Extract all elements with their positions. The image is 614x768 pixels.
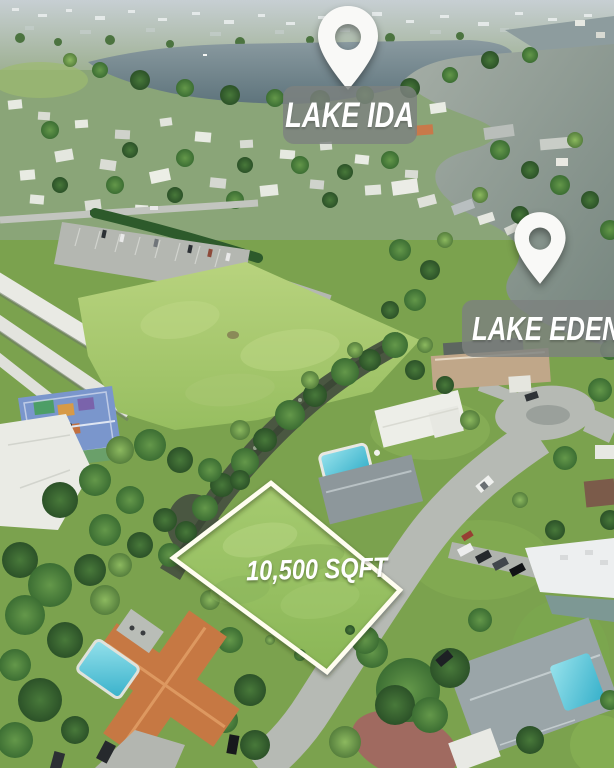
aerial-photo: LAKE IDA LAKE EDEN 10,500 SQFT — [0, 0, 614, 768]
lake-ida-label-text: LAKE IDA — [286, 98, 415, 133]
lake-eden-label-text: LAKE EDEN — [472, 312, 614, 345]
map-pin-icon — [511, 204, 569, 292]
lot-size-label: 10,500 SQFT — [246, 555, 353, 586]
lake-eden-label: LAKE EDEN — [462, 300, 614, 357]
map-pin-icon — [314, 4, 382, 92]
lake-ida-label: LAKE IDA — [283, 86, 417, 144]
